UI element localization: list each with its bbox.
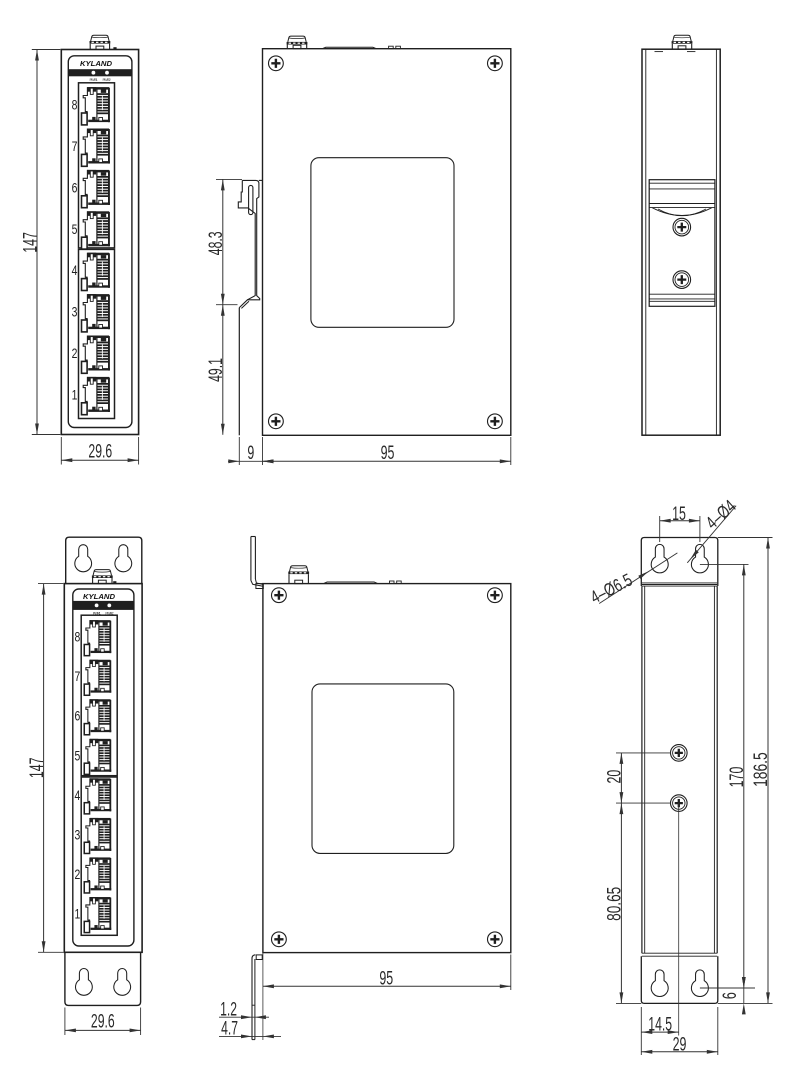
svg-text:80.65: 80.65 — [604, 887, 625, 921]
svg-text:5: 5 — [72, 221, 78, 237]
svg-text:8: 8 — [72, 97, 78, 113]
svg-text:7: 7 — [72, 138, 78, 154]
svg-text:6: 6 — [720, 992, 741, 999]
svg-text:20: 20 — [604, 770, 625, 784]
svg-text:PWR1: PWR1 — [90, 77, 99, 82]
svg-text:9: 9 — [247, 443, 254, 464]
svg-text:29: 29 — [673, 1034, 687, 1055]
svg-text:95: 95 — [379, 968, 393, 989]
svg-text:3: 3 — [75, 826, 81, 842]
svg-text:186.5: 186.5 — [751, 752, 772, 787]
svg-text:1: 1 — [72, 386, 78, 402]
svg-text:29.6: 29.6 — [88, 442, 112, 463]
svg-text:147: 147 — [27, 757, 48, 778]
svg-text:7: 7 — [75, 668, 81, 684]
svg-text:2: 2 — [75, 866, 81, 882]
svg-text:14.5: 14.5 — [648, 1015, 672, 1036]
svg-text:8: 8 — [75, 629, 81, 645]
svg-text:1: 1 — [75, 905, 81, 921]
svg-text:48.3: 48.3 — [206, 231, 227, 255]
svg-text:147: 147 — [20, 232, 41, 253]
svg-text:15: 15 — [672, 504, 686, 525]
svg-text:6: 6 — [72, 179, 78, 195]
svg-text:6: 6 — [75, 708, 81, 724]
svg-text:KYLAND: KYLAND — [80, 59, 112, 68]
svg-text:1.2: 1.2 — [220, 999, 237, 1020]
svg-text:KYLAND: KYLAND — [83, 592, 115, 601]
svg-text:4.7: 4.7 — [221, 1019, 238, 1040]
svg-text:3: 3 — [72, 304, 78, 320]
svg-text:95: 95 — [381, 443, 395, 464]
svg-text:49.1: 49.1 — [206, 358, 227, 382]
svg-text:2: 2 — [72, 345, 78, 361]
svg-text:4: 4 — [75, 787, 81, 803]
svg-text:29.6: 29.6 — [91, 1012, 115, 1033]
svg-text:5: 5 — [75, 747, 81, 763]
svg-text:PWR2: PWR2 — [103, 77, 112, 82]
svg-text:170: 170 — [727, 767, 748, 788]
svg-text:4: 4 — [72, 262, 78, 278]
